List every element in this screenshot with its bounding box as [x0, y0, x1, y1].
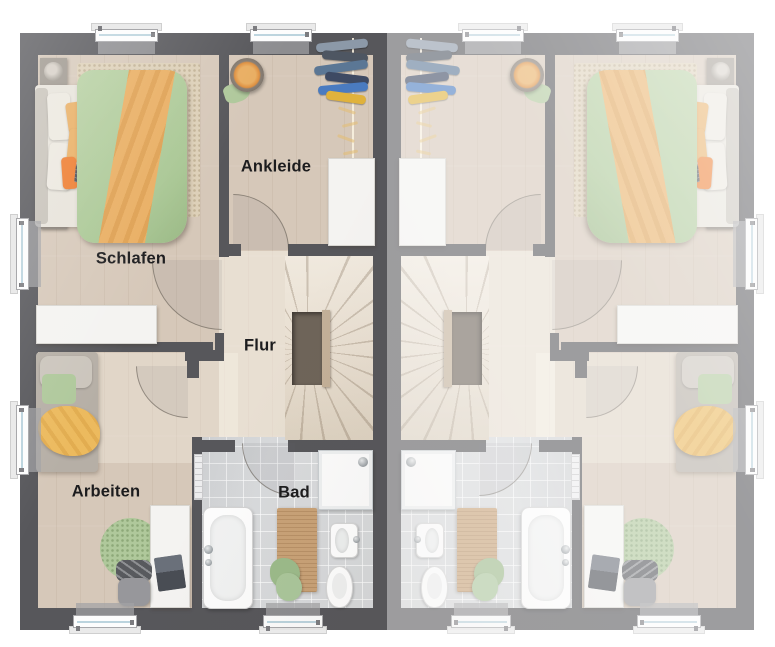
wall-office-stub	[187, 352, 199, 378]
window	[10, 405, 41, 475]
wall-bedroom-door-jamb	[215, 333, 224, 361]
bathtub-basin	[528, 515, 564, 601]
room-label-arbeiten: Arbeiten	[72, 483, 141, 502]
laptop	[588, 554, 620, 592]
wall-party	[373, 33, 387, 630]
bathtub	[521, 507, 571, 609]
desk-chair-seat	[624, 578, 656, 606]
staircase	[285, 256, 373, 440]
nightstand	[707, 58, 734, 85]
room-label-schlafen: Schlafen	[96, 250, 166, 269]
shower-head	[406, 457, 416, 467]
laundry-basket	[510, 58, 544, 92]
stair-banister	[444, 310, 452, 387]
green-blanket	[698, 374, 732, 404]
floorplan-image: Schlafen Ankleide Flur Arbeiten Bad	[0, 0, 775, 647]
staircase	[401, 256, 489, 440]
stairwell-void	[452, 312, 482, 385]
stairwell-void	[292, 312, 322, 385]
window	[637, 603, 701, 634]
window	[263, 603, 323, 634]
window	[250, 23, 312, 54]
wall-bath-top-a	[539, 440, 582, 452]
tub-faucet	[204, 545, 213, 554]
tub-faucet	[205, 559, 212, 566]
stair-banister	[322, 310, 330, 387]
tub-faucet	[562, 559, 569, 566]
bathtub-basin	[210, 515, 246, 601]
window	[95, 23, 158, 54]
laptop	[154, 554, 186, 592]
shower-head	[358, 457, 368, 467]
room-label-bad: Bad	[278, 484, 310, 503]
wall-bedroom-door-jamb	[550, 333, 559, 361]
basin-faucet	[414, 536, 421, 543]
bathtub	[203, 507, 253, 609]
wardrobe	[328, 158, 375, 246]
green-blanket	[42, 374, 76, 404]
window	[73, 603, 137, 634]
window	[733, 218, 764, 290]
towel-radiator	[571, 454, 580, 500]
bedroom-sideboard	[36, 305, 157, 344]
window	[10, 218, 41, 290]
wall-party	[387, 33, 401, 630]
unit-right: Schlafen Ankleide Flur Arbeiten Bad	[387, 33, 754, 630]
room-label-ankleide: Ankleide	[241, 158, 311, 177]
bed-headboard	[726, 88, 739, 224]
bedroom-sideboard	[617, 305, 738, 344]
duvet	[587, 70, 697, 243]
tub-faucet	[561, 545, 570, 554]
orange-blanket	[596, 70, 676, 243]
window	[733, 405, 764, 475]
orange-blanket	[97, 70, 177, 243]
window	[616, 23, 679, 54]
laundry-basket	[230, 58, 264, 92]
wall-bath-top-a	[192, 440, 235, 452]
unit-left: Schlafen Ankleide Flur Arbeiten Bad	[20, 33, 387, 630]
towel-radiator	[194, 454, 203, 500]
towel-pile	[276, 573, 302, 601]
window	[451, 603, 511, 634]
desk-chair-seat	[118, 578, 150, 606]
toilet	[326, 566, 353, 608]
wardrobe	[399, 158, 446, 246]
basin-faucet	[353, 536, 360, 543]
bed-headboard	[35, 88, 48, 224]
room-label-flur: Flur	[244, 337, 276, 356]
duvet	[77, 70, 187, 243]
toilet	[421, 566, 448, 608]
floor-plan: Schlafen Ankleide Flur Arbeiten Bad	[0, 0, 775, 647]
window	[462, 23, 524, 54]
nightstand	[40, 58, 67, 85]
towel-pile	[472, 573, 498, 601]
